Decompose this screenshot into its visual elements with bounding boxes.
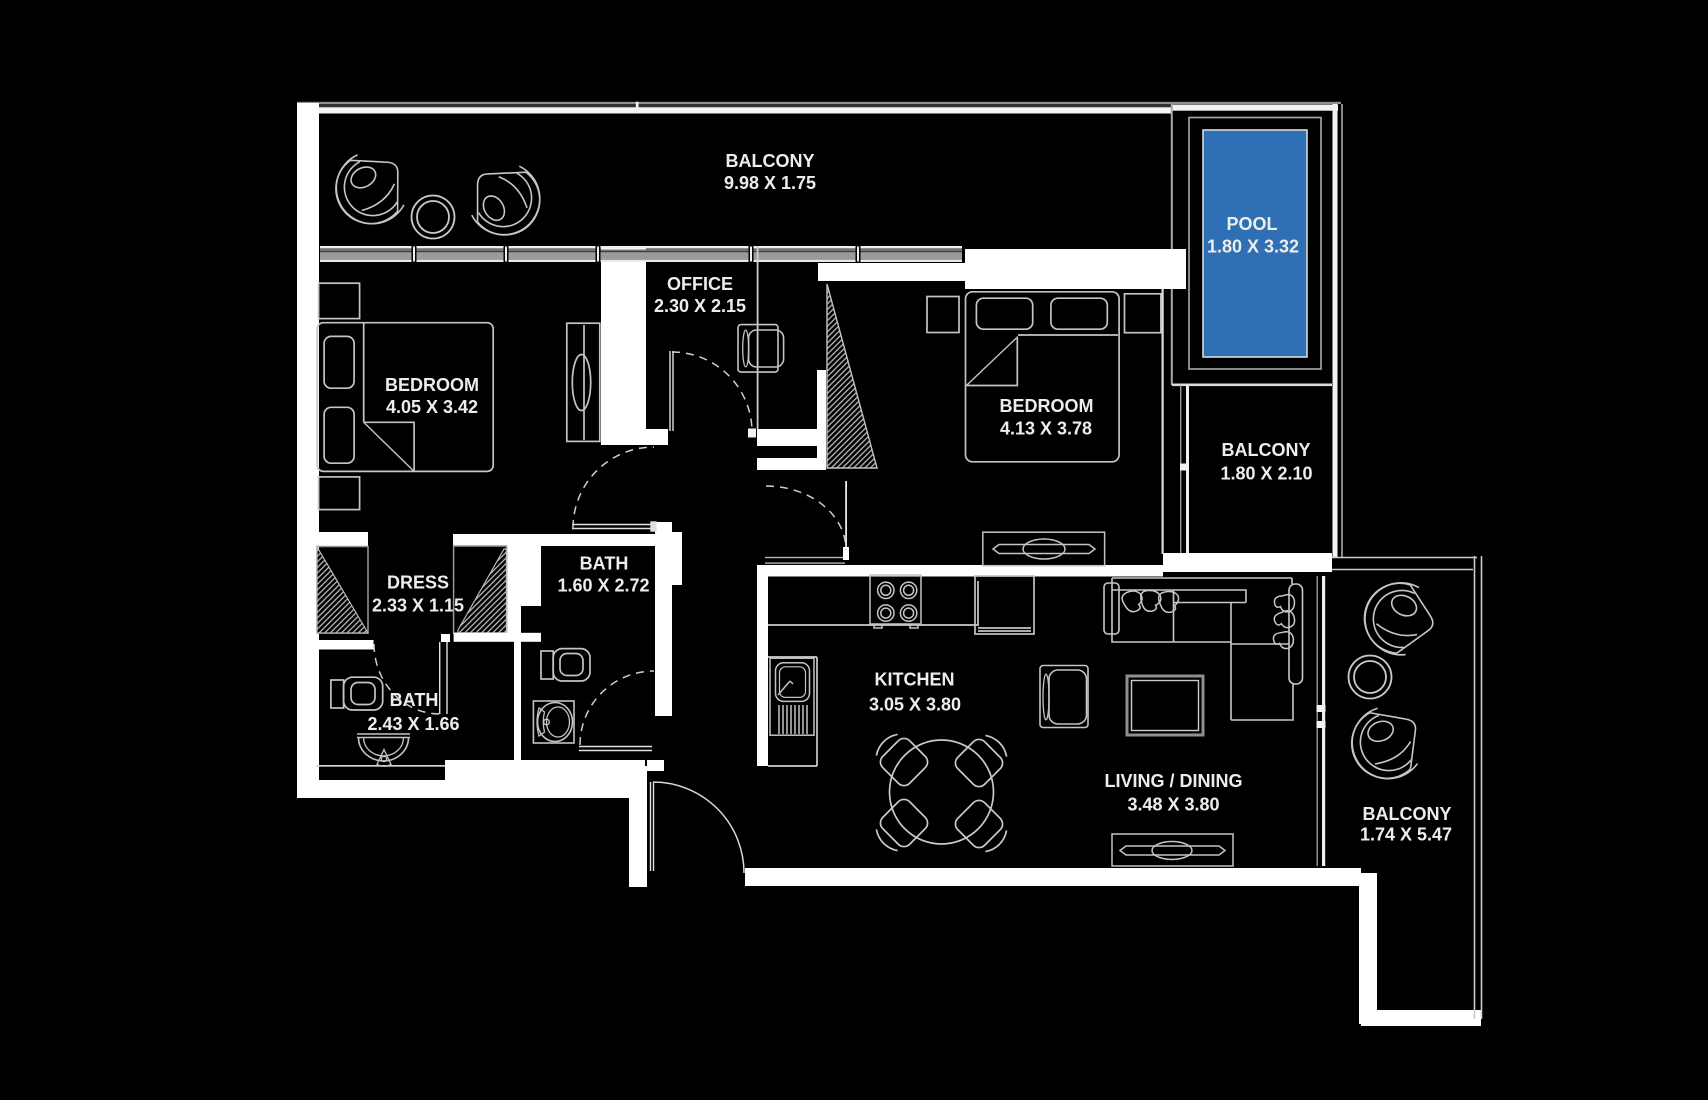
svg-text:1.80 X 2.10: 1.80 X 2.10: [1220, 464, 1312, 484]
svg-text:1.80 X 3.32: 1.80 X 3.32: [1207, 237, 1299, 257]
svg-text:1.60 X 2.72: 1.60 X 2.72: [557, 576, 649, 596]
svg-text:LIVING / DINING: LIVING / DINING: [1104, 771, 1242, 791]
svg-text:4.05 X 3.42: 4.05 X 3.42: [386, 397, 478, 417]
svg-text:2.30 X 2.15: 2.30 X 2.15: [654, 296, 746, 316]
svg-text:3.48 X 3.80: 3.48 X 3.80: [1127, 795, 1219, 815]
svg-text:BEDROOM: BEDROOM: [1000, 396, 1094, 416]
svg-text:DRESS: DRESS: [387, 573, 449, 593]
svg-text:BEDROOM: BEDROOM: [385, 375, 479, 395]
svg-text:OFFICE: OFFICE: [667, 274, 733, 294]
svg-text:BATH: BATH: [390, 690, 439, 710]
svg-text:9.98 X 1.75: 9.98 X 1.75: [724, 173, 816, 193]
svg-text:4.13 X 3.78: 4.13 X 3.78: [1000, 419, 1092, 439]
svg-text:BALCONY: BALCONY: [726, 151, 815, 171]
svg-text:BALCONY: BALCONY: [1363, 804, 1452, 824]
svg-text:1.74 X 5.47: 1.74 X 5.47: [1360, 825, 1452, 845]
svg-text:2.33 X 1.15: 2.33 X 1.15: [372, 596, 464, 616]
svg-text:3.05 X 3.80: 3.05 X 3.80: [869, 695, 961, 715]
svg-text:BATH: BATH: [580, 554, 629, 574]
svg-text:KITCHEN: KITCHEN: [875, 670, 955, 690]
svg-text:POOL: POOL: [1226, 214, 1277, 234]
svg-text:BALCONY: BALCONY: [1222, 440, 1311, 460]
svg-text:2.43 X 1.66: 2.43 X 1.66: [367, 714, 459, 734]
